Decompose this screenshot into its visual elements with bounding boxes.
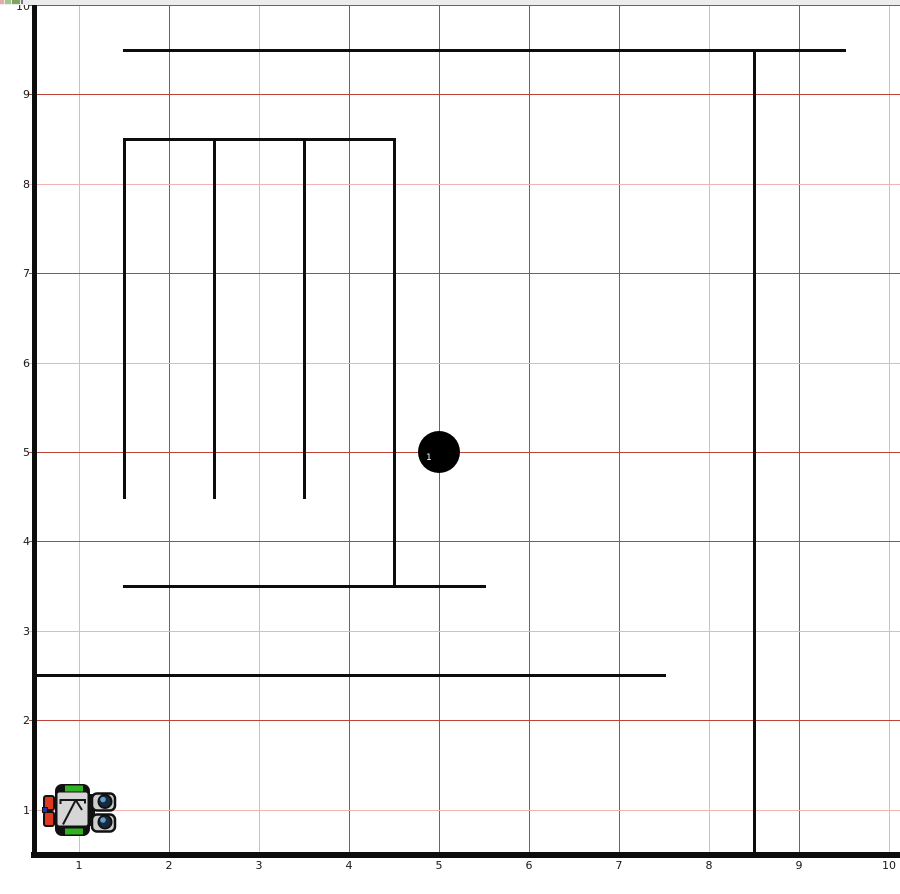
gridline-horizontal-y7: [29, 273, 900, 274]
robot-tail-block-bottom: [44, 812, 54, 826]
gridline-vertical-x5: [439, 5, 440, 853]
gridline-horizontal-y3: [29, 631, 900, 632]
robot-eye-top-highlight: [100, 797, 106, 803]
robot-tail-led: [43, 808, 48, 813]
robot-body: [58, 793, 88, 826]
top-wall: [123, 49, 846, 52]
puck[interactable]: 1: [418, 431, 460, 473]
gridline-horizontal-y9: [29, 94, 900, 95]
left-boundary-wall: [32, 5, 37, 858]
gridline-horizontal-y10: [29, 5, 900, 6]
x-axis-label-3: 3: [256, 860, 263, 871]
room-right-wall: [393, 138, 396, 588]
top-strip-icon-fragment-0: [0, 0, 4, 4]
gridline-vertical-x8: [709, 5, 710, 853]
y-axis-label-5: 5: [0, 447, 30, 458]
gridline-vertical-x7: [619, 5, 620, 853]
top-strip-icon-fragment-2: [12, 0, 20, 4]
gridline-vertical-x4: [349, 5, 350, 853]
x-axis-label-5: 5: [436, 860, 443, 871]
x-axis-label-6: 6: [526, 860, 533, 871]
room-divider-1: [213, 138, 216, 499]
x-axis-label-9: 9: [796, 860, 803, 871]
right-wall: [753, 49, 756, 857]
window-top-strip: [0, 0, 900, 5]
y-axis-label-4: 4: [0, 536, 30, 547]
gridline-horizontal-y6: [29, 363, 900, 364]
gridline-horizontal-y1: [29, 810, 900, 811]
robot-eye-top: [99, 795, 112, 808]
world-canvas: 1234567891012345678910 1: [0, 0, 900, 894]
gridline-horizontal-y4: [29, 541, 900, 542]
gridline-vertical-x6: [529, 5, 530, 853]
y-axis-label-3: 3: [0, 626, 30, 637]
x-axis-label-8: 8: [706, 860, 713, 871]
gridline-horizontal-y5: [29, 452, 900, 453]
x-axis-label-7: 7: [616, 860, 623, 871]
y-axis-label-2: 2: [0, 715, 30, 726]
x-axis-label-10: 10: [882, 860, 896, 871]
robot-sprite[interactable]: [41, 782, 117, 838]
gridline-vertical-x9: [799, 5, 800, 853]
bottom-boundary-wall: [31, 852, 900, 858]
top-strip-icon-fragment-1: [5, 0, 11, 4]
x-axis-label-1: 1: [76, 860, 83, 871]
robot-eye-bottom: [99, 816, 112, 829]
robot-eye-bottom-highlight: [100, 817, 106, 823]
room-bottom-wall: [123, 585, 486, 588]
gridline-vertical-x1: [79, 5, 80, 853]
y-axis-label-9: 9: [0, 89, 30, 100]
y-axis-label-8: 8: [0, 179, 30, 190]
gridline-vertical-x2: [169, 5, 170, 853]
gridline-horizontal-y2: [29, 720, 900, 721]
gridline-vertical-x10: [889, 5, 890, 853]
x-axis-label-2: 2: [166, 860, 173, 871]
top-strip-icon-fragment-3: [21, 0, 23, 4]
low-long-wall: [33, 674, 666, 677]
puck-label: 1: [426, 454, 432, 463]
robot-tread-bottom: [65, 829, 83, 835]
y-axis-label-1: 1: [0, 805, 30, 816]
x-axis-label-4: 4: [346, 860, 353, 871]
y-axis-label-7: 7: [0, 268, 30, 279]
room-left-wall: [123, 138, 126, 499]
gridline-vertical-x3: [259, 5, 260, 853]
robot-tread-top: [65, 786, 83, 792]
gridline-horizontal-y8: [29, 184, 900, 185]
y-axis-label-6: 6: [0, 358, 30, 369]
room-top-wall: [123, 138, 396, 141]
room-divider-2: [303, 138, 306, 499]
